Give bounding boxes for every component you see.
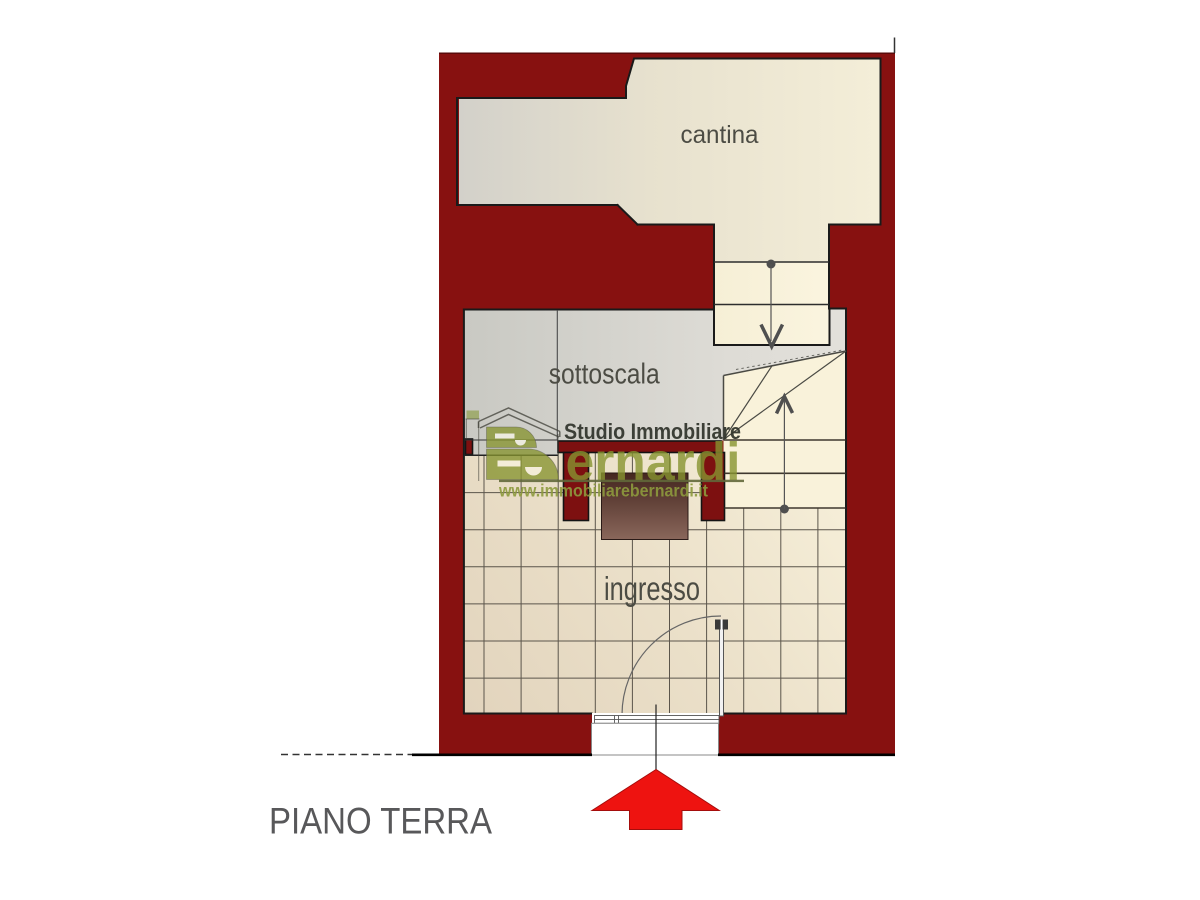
svg-text:sottoscala: sottoscala <box>549 358 660 390</box>
svg-text:PIANO TERRA: PIANO TERRA <box>269 800 492 842</box>
svg-text:ingresso: ingresso <box>604 570 700 607</box>
svg-text:cantina: cantina <box>681 121 759 149</box>
svg-text:Studio Immobiliare: Studio Immobiliare <box>564 419 741 444</box>
svg-text:www.immobiliarebernardi.it: www.immobiliarebernardi.it <box>498 481 708 501</box>
